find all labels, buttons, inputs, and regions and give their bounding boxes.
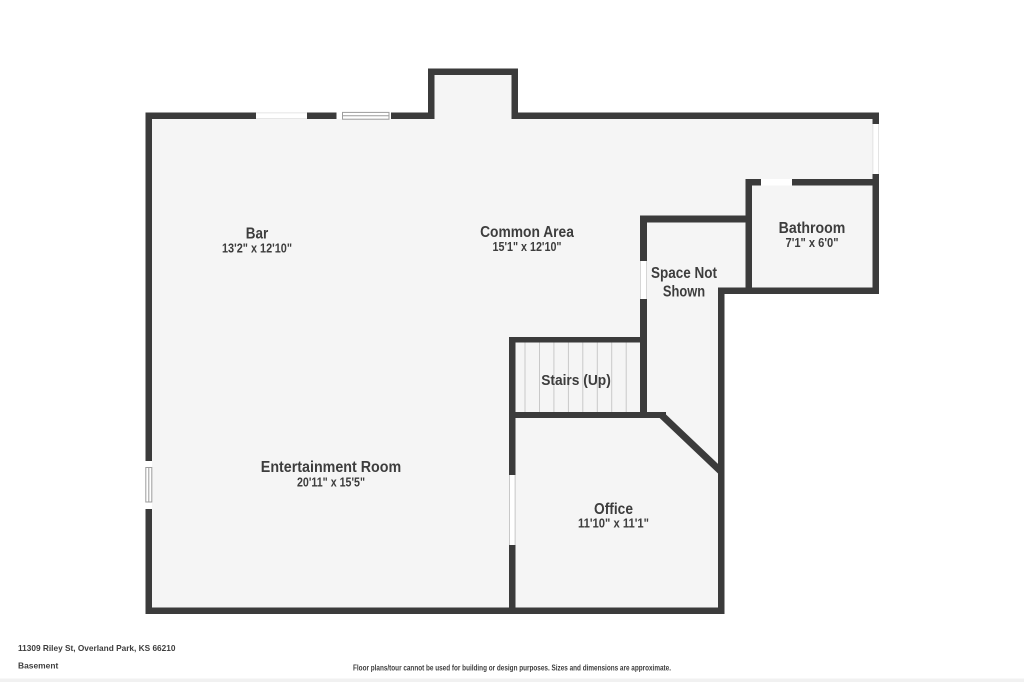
svg-text:Entertainment Room: Entertainment Room: [261, 459, 401, 476]
svg-text:11'10" x 11'1": 11'10" x 11'1": [578, 517, 649, 531]
svg-text:Space Not: Space Not: [651, 265, 717, 282]
svg-text:Basement: Basement: [18, 661, 58, 671]
svg-text:15'1" x 12'10": 15'1" x 12'10": [493, 240, 562, 254]
svg-text:Shown: Shown: [663, 284, 705, 301]
svg-text:7'1" x 6'0": 7'1" x 6'0": [786, 236, 839, 250]
svg-text:Floor plans/tour cannot be use: Floor plans/tour cannot be used for buil…: [353, 664, 671, 673]
svg-text:20'11" x 15'5": 20'11" x 15'5": [297, 476, 365, 490]
svg-text:11309 Riley St, Overland Park,: 11309 Riley St, Overland Park, KS 66210: [18, 643, 176, 653]
svg-text:Common Area: Common Area: [480, 224, 574, 241]
svg-text:13'2" x 12'10": 13'2" x 12'10": [222, 242, 292, 256]
svg-text:Office: Office: [594, 501, 633, 518]
svg-text:Bathroom: Bathroom: [779, 220, 846, 237]
svg-text:Stairs (Up): Stairs (Up): [541, 373, 611, 389]
svg-text:Bar: Bar: [246, 226, 269, 243]
